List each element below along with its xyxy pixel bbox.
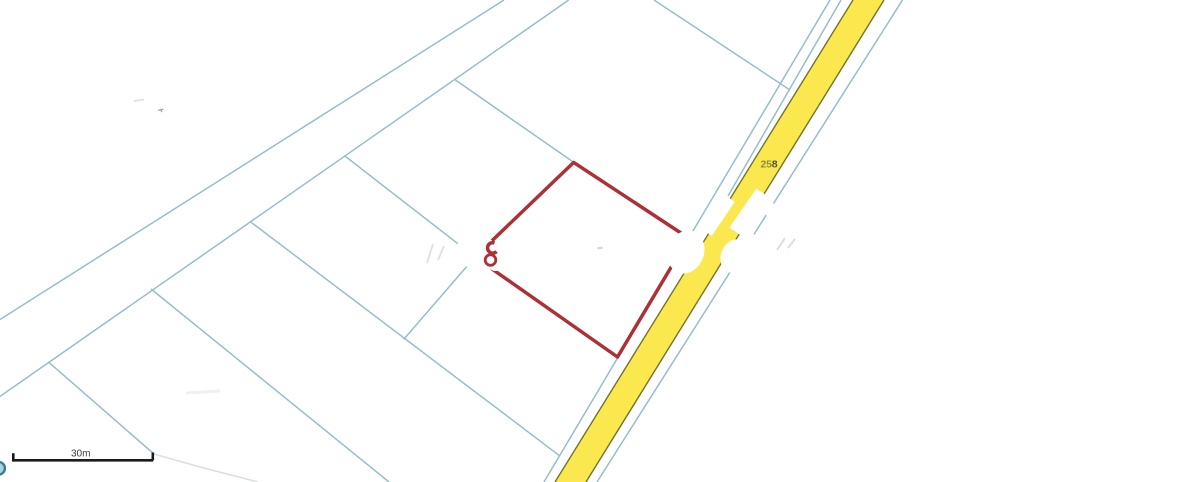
svg-text:30m: 30m xyxy=(71,449,90,460)
svg-text:258: 258 xyxy=(761,159,778,171)
